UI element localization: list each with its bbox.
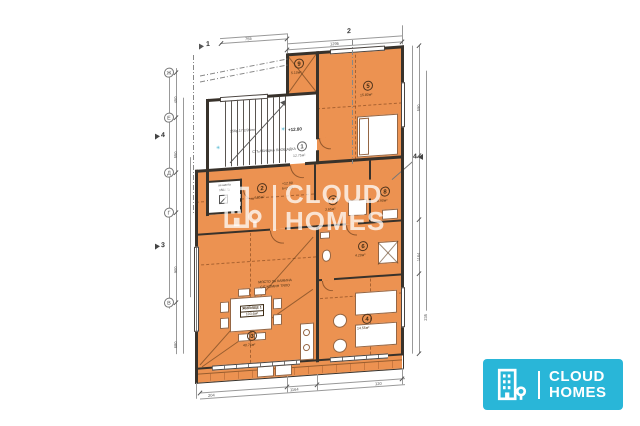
section-marker: 4 — [155, 132, 165, 140]
level-mark: +12.80 — [288, 126, 302, 132]
section-symbol: ✳ — [281, 127, 285, 133]
dimension-line — [220, 38, 287, 44]
axis-marker-flag — [199, 43, 204, 49]
building-pin-icon — [222, 184, 264, 232]
section-marker: 3 — [155, 242, 165, 250]
dimension-number: 590 — [417, 104, 421, 111]
wall — [369, 161, 371, 180]
window — [194, 247, 199, 332]
logo-line-1: CLOUD — [549, 369, 607, 385]
grid-letter: В — [164, 297, 174, 308]
axis-line — [193, 55, 194, 215]
axis-marker-1: 1 — [206, 41, 210, 48]
watermark-line-1: CLOUD — [285, 181, 385, 208]
room-area: 12.75м² — [293, 153, 305, 158]
dimension-number: 450 — [174, 96, 178, 103]
section-number: 4 — [161, 132, 165, 139]
logo-divider — [538, 371, 540, 399]
grid-letter: Е — [164, 112, 174, 123]
dimension-line — [412, 46, 413, 354]
chair — [220, 301, 229, 313]
cloud-homes-watermark: CLOUD HOMES — [222, 181, 385, 235]
axis-marker-2: 2 — [347, 28, 351, 35]
logo-line-2: HOMES — [549, 385, 607, 401]
room-area: 4.20м² — [355, 253, 365, 258]
balcony-parapet — [195, 369, 197, 383]
chair — [273, 298, 282, 310]
dimension-line — [426, 71, 427, 311]
grid-letter: Г — [164, 207, 174, 218]
wall — [316, 225, 319, 362]
dimension-tick — [417, 351, 422, 356]
wall — [206, 98, 209, 215]
window — [401, 82, 405, 127]
logo-text: CLOUD HOMES — [549, 369, 607, 401]
watermark-divider — [273, 185, 276, 231]
extension-line — [196, 383, 197, 399]
room-area: 15.80м² — [360, 92, 372, 97]
wall — [401, 327, 404, 355]
window — [401, 287, 405, 327]
chair — [238, 288, 250, 297]
dimension-number: 120 — [375, 381, 382, 385]
building-pin-icon — [496, 368, 528, 402]
cloud-homes-logo: CLOUD HOMES — [483, 359, 623, 410]
balcony-parapet — [403, 354, 405, 368]
dimension-number: 204 — [208, 393, 215, 397]
construction-line — [355, 50, 356, 160]
dimension-number: 1295 — [330, 41, 339, 46]
dimension-number: 1164 — [417, 252, 421, 261]
dimension-number: 900 — [174, 266, 178, 273]
room-area: 5.10м² — [291, 70, 301, 75]
axis-line — [352, 40, 353, 164]
section-symbol: ✳ — [216, 145, 220, 151]
section-arrow-icon — [155, 243, 160, 249]
dimension-line — [200, 384, 405, 399]
watermark-text: CLOUD HOMES — [285, 181, 385, 235]
pillow — [359, 118, 369, 156]
wall — [316, 51, 319, 139]
bed — [355, 290, 397, 316]
dimension-line — [190, 157, 191, 297]
wall — [401, 127, 404, 287]
watermark-line-2: HOMES — [285, 208, 385, 235]
dimension-number: 755 — [245, 37, 252, 41]
unit-label-box: ЖИЛИЩЕ 1 103.6м² — [240, 304, 264, 318]
dimension-number: 1164 — [290, 387, 299, 392]
chair — [273, 314, 282, 326]
dimension-number: 550 — [174, 151, 178, 158]
floor-plan-sheet: 1 12.75м² 2 4.85м² 3 40.75м² 4 14.55м² 5… — [0, 0, 640, 426]
toilet — [322, 249, 331, 262]
section-marker: 4 — [413, 153, 423, 161]
grid-letter: Д — [164, 167, 174, 178]
chair — [220, 317, 229, 329]
grid-letter: Ж — [164, 67, 174, 78]
room-area: 14.55м² — [357, 326, 369, 331]
section-arrow-icon — [418, 153, 423, 159]
dimension-line — [419, 45, 420, 353]
wall — [401, 45, 404, 83]
dimension-line — [183, 98, 184, 354]
section-number: 3 — [161, 242, 165, 249]
section-arrow-icon — [155, 133, 160, 139]
dimension-number: 680 — [174, 341, 178, 348]
dimension-number: 235 — [424, 314, 428, 321]
section-number: 4 — [413, 153, 417, 160]
dimension-line — [169, 69, 170, 309]
